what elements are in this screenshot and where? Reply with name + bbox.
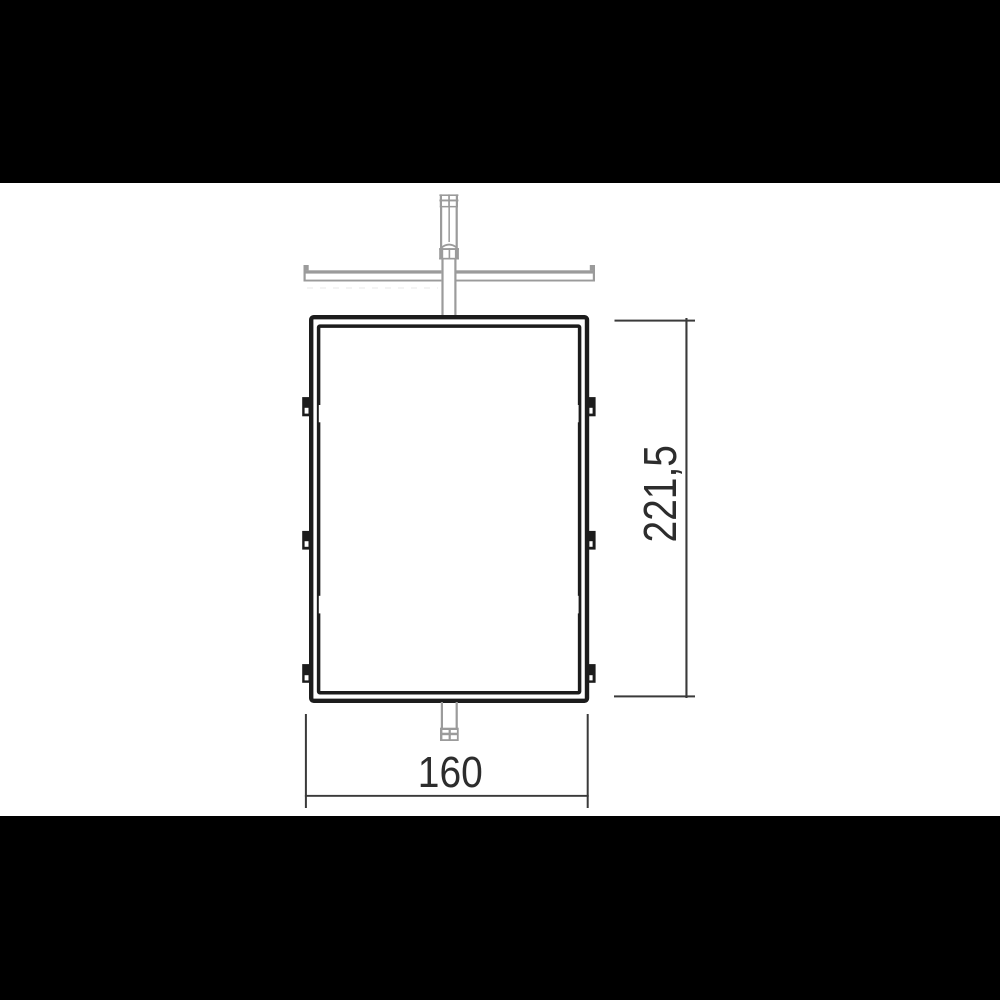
- svg-text:160: 160: [418, 748, 483, 797]
- svg-text:221,5: 221,5: [634, 445, 686, 543]
